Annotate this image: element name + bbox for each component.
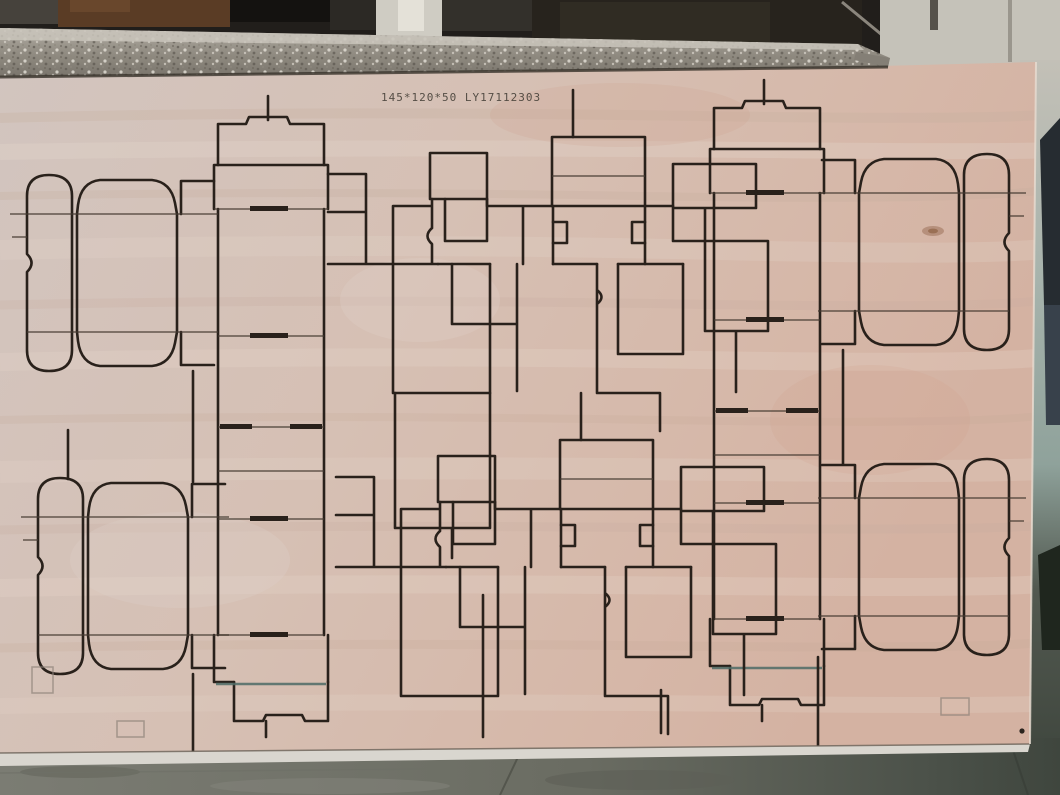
plywood-die-board: 145*120*50 LY17112303	[0, 62, 1060, 756]
back-wall	[880, 0, 1060, 70]
screw-hole	[1019, 728, 1024, 733]
workshop-photo: 145*120*50 LY17112303	[0, 0, 1060, 795]
die-board-photo: 145*120*50 LY17112303	[0, 0, 1060, 795]
stamp-text: 145*120*50 LY17112303	[381, 91, 541, 104]
